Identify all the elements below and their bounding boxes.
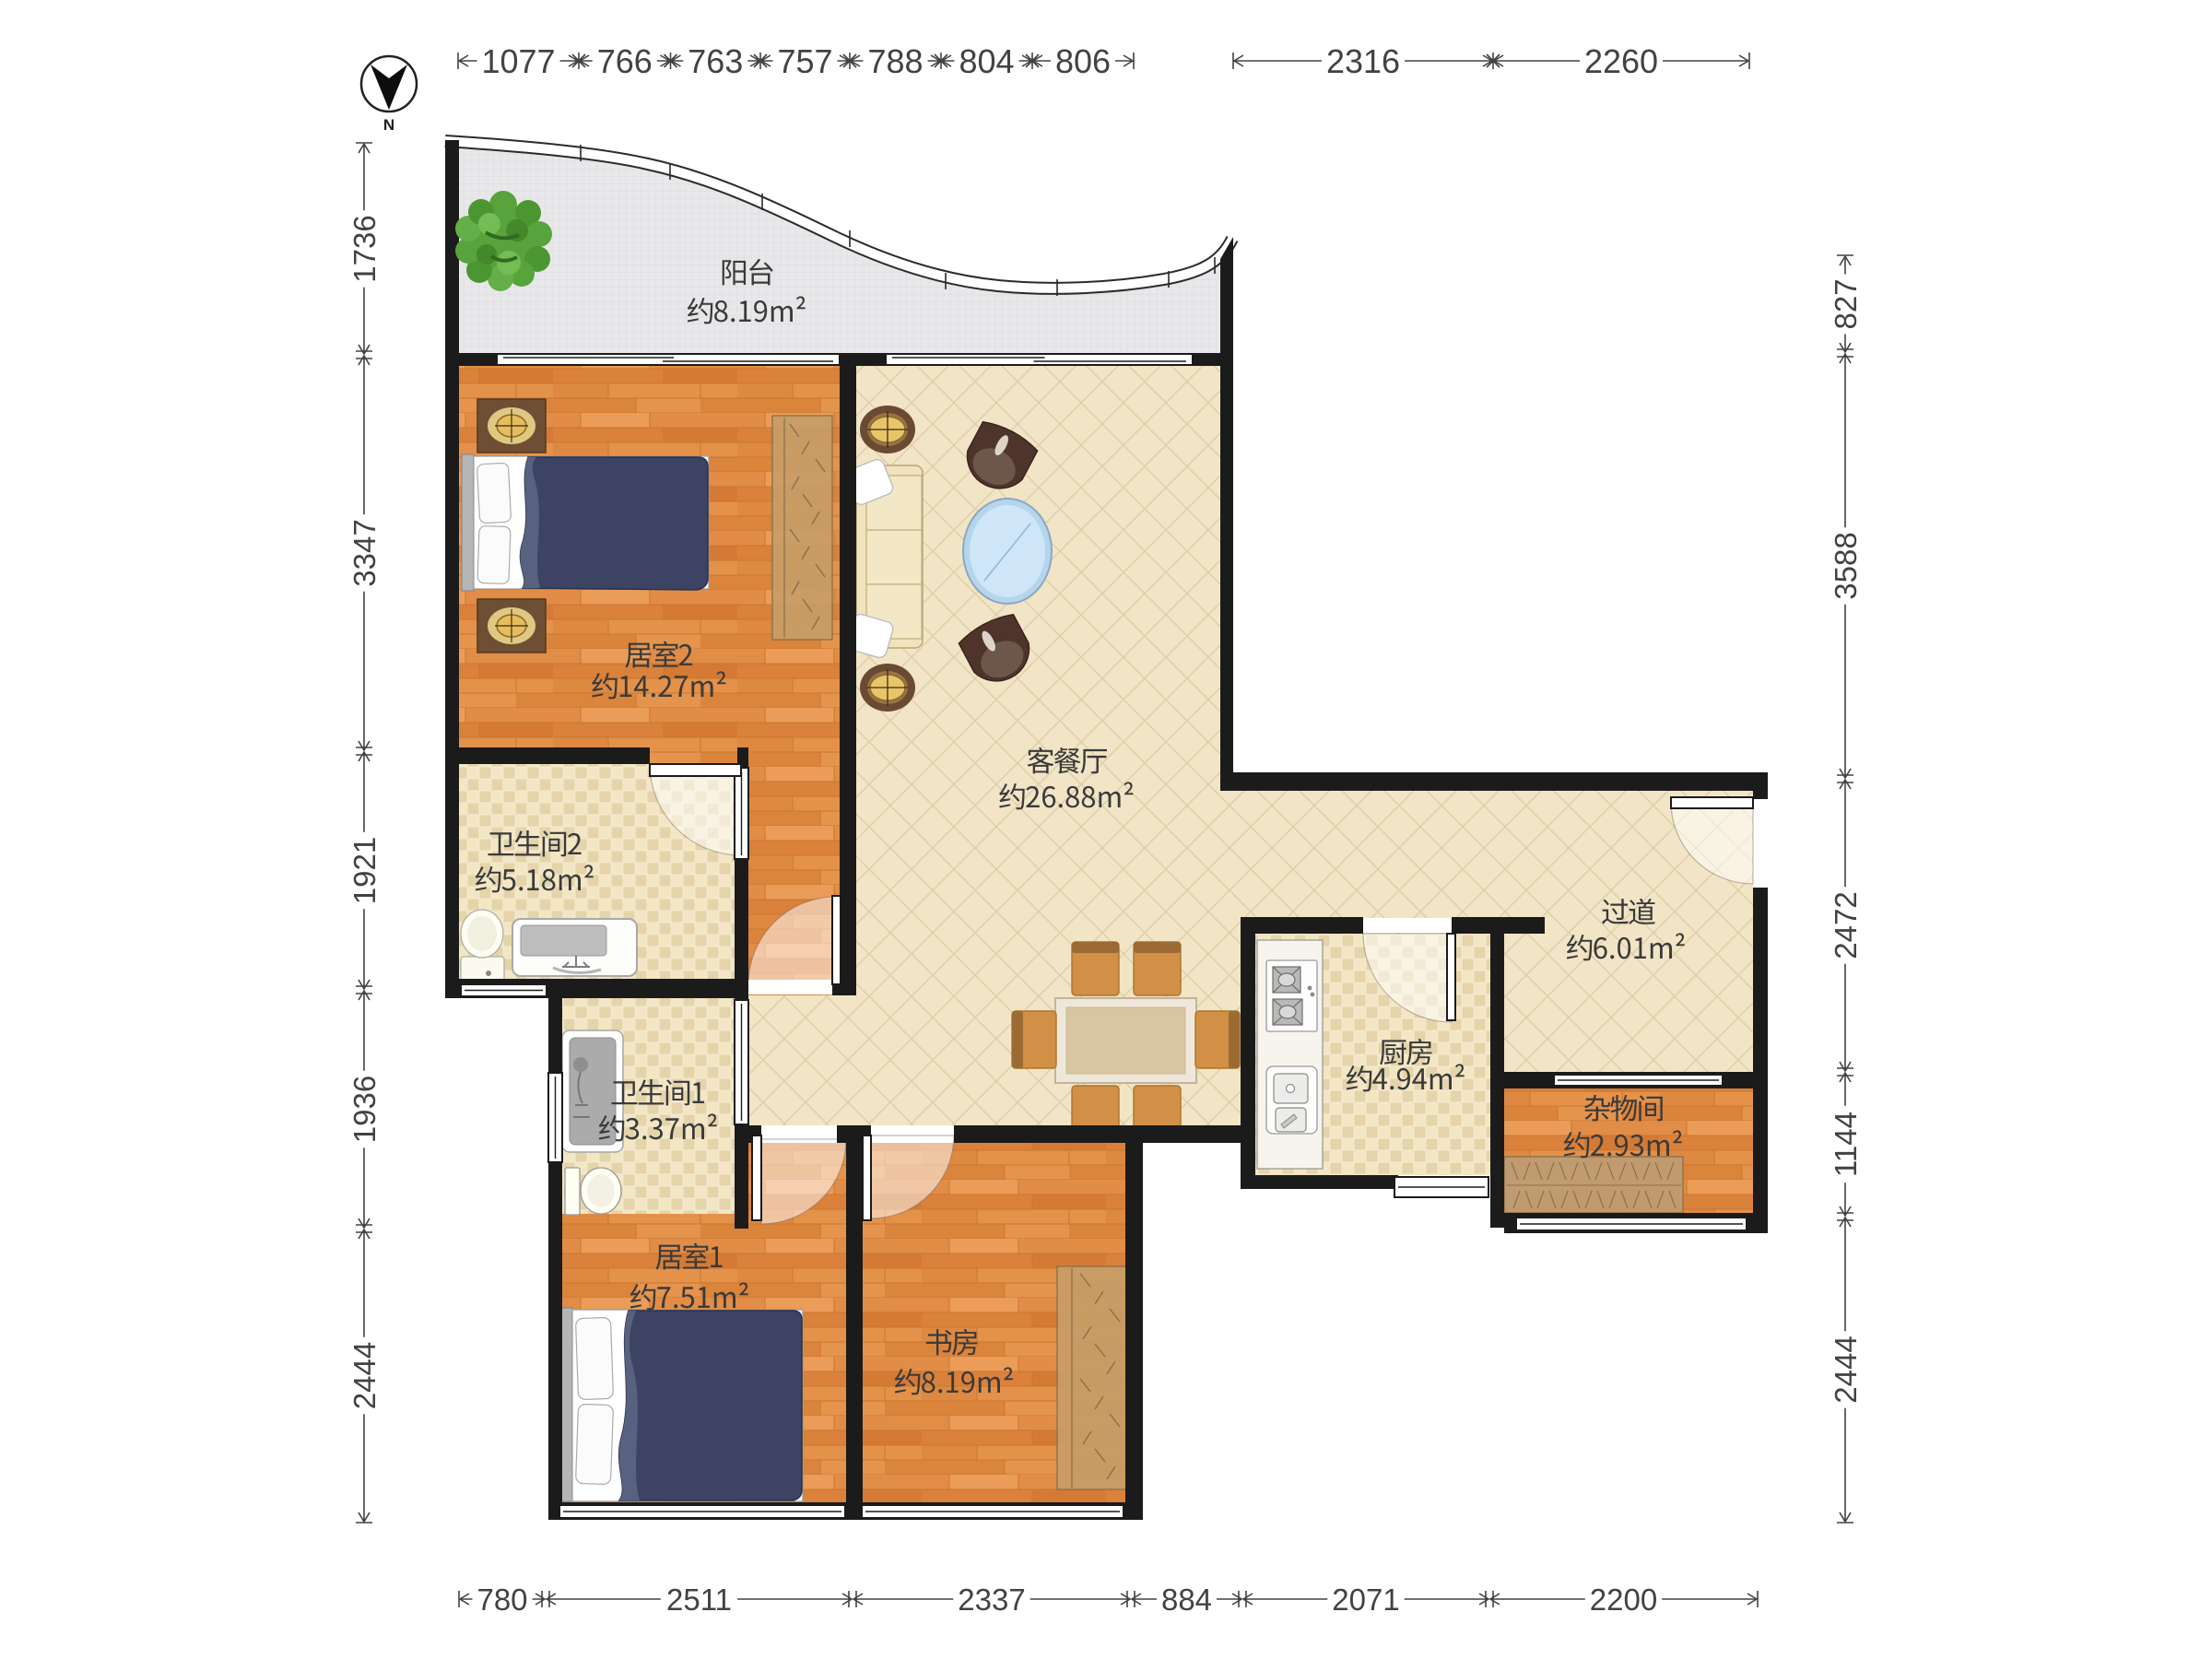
svg-text:3347: 3347 <box>347 519 382 586</box>
svg-text:1936: 1936 <box>347 1076 382 1143</box>
svg-text:1077: 1077 <box>481 42 555 80</box>
svg-text:1736: 1736 <box>347 215 382 282</box>
svg-text:2511: 2511 <box>666 1583 732 1617</box>
svg-text:780: 780 <box>477 1583 527 1617</box>
svg-text:2472: 2472 <box>1829 891 1863 959</box>
svg-text:2337: 2337 <box>958 1583 1025 1617</box>
svg-text:806: 806 <box>1055 42 1111 80</box>
svg-text:763: 763 <box>688 42 743 80</box>
svg-text:2444: 2444 <box>347 1342 382 1409</box>
svg-text:788: 788 <box>867 42 923 80</box>
svg-text:804: 804 <box>959 42 1014 80</box>
svg-text:2260: 2260 <box>1584 42 1658 80</box>
svg-text:2071: 2071 <box>1332 1583 1399 1617</box>
svg-text:884: 884 <box>1161 1583 1212 1617</box>
svg-text:2200: 2200 <box>1590 1583 1657 1617</box>
svg-text:2444: 2444 <box>1829 1335 1863 1403</box>
svg-text:766: 766 <box>597 42 653 80</box>
svg-text:N: N <box>383 116 394 134</box>
svg-text:3588: 3588 <box>1829 532 1863 599</box>
svg-text:1921: 1921 <box>347 837 382 904</box>
svg-text:1144: 1144 <box>1829 1112 1863 1177</box>
svg-text:2316: 2316 <box>1326 42 1400 80</box>
svg-text:757: 757 <box>777 42 832 80</box>
svg-text:827: 827 <box>1829 278 1863 329</box>
